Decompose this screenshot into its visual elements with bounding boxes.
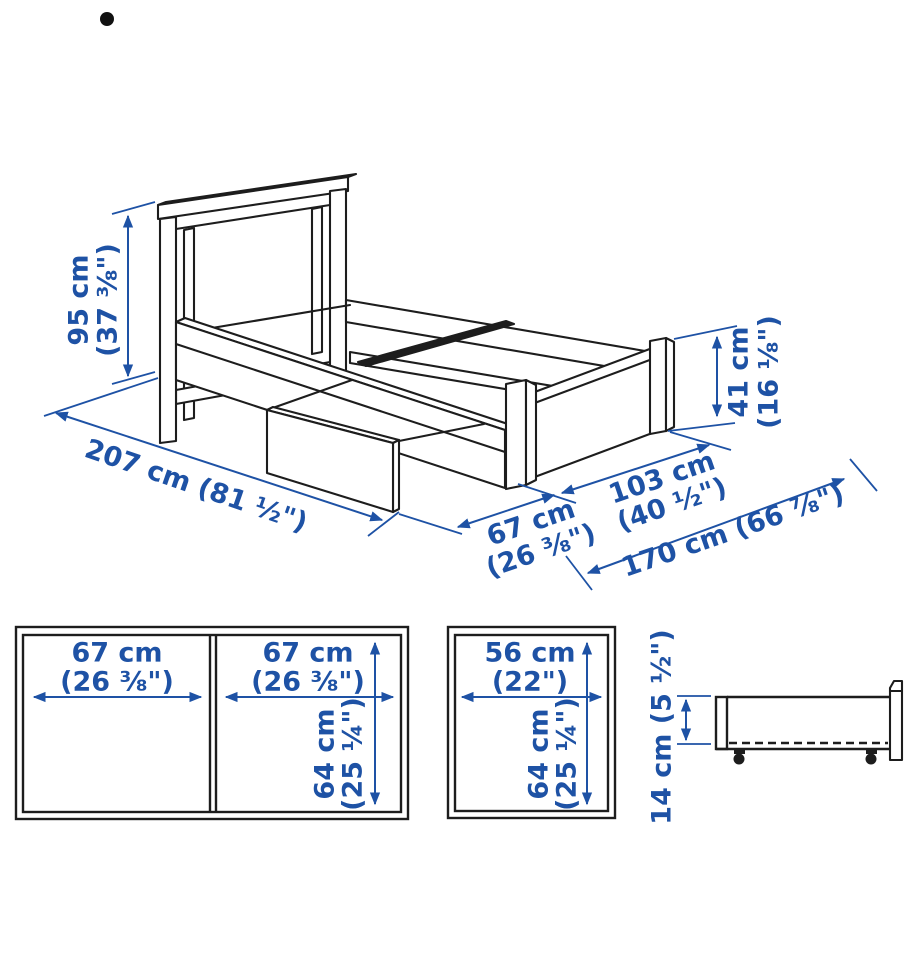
bed-isometric-drawing bbox=[158, 174, 674, 512]
headboard-muntin-right bbox=[312, 207, 322, 354]
side-view-back-panel bbox=[890, 681, 902, 760]
label-right-drawer-width-metric: 67 cm bbox=[262, 638, 353, 669]
caster-mount-left bbox=[734, 749, 745, 754]
page: { "colors": { "dimension_blue": "#1e52a5… bbox=[0, 0, 922, 960]
footboard-panel bbox=[532, 347, 655, 478]
label-double-drawer-depth-imperial: (25 ¼") bbox=[338, 697, 369, 811]
double-drawer-divider bbox=[210, 635, 216, 812]
label-single-drawer-width-imperial: (22") bbox=[492, 667, 568, 698]
ticks-14cm bbox=[677, 696, 711, 744]
caster-wheel-left bbox=[734, 754, 745, 765]
side-view-body-edges bbox=[716, 697, 902, 749]
drawer-side-view bbox=[677, 681, 902, 765]
label-left-drawer-width-metric: 67 cm bbox=[71, 638, 162, 669]
bed-dimension-diagram: 95 cm (37 ⅜") 41 cm (16 ⅛") 207 cm (81 ½… bbox=[0, 0, 922, 960]
label-drawer-height: 14 cm (5 ½") bbox=[647, 629, 678, 824]
label-right-drawer-width-imperial: (26 ⅜") bbox=[251, 667, 365, 698]
label-single-drawer-depth-metric: 64 cm bbox=[524, 708, 555, 799]
footboard-post-near-side bbox=[526, 380, 536, 485]
label-headboard-height-imperial: (37 ⅜") bbox=[93, 243, 124, 357]
label-single-drawer-depth-imperial: (25 ¼") bbox=[552, 697, 583, 811]
label-footboard-height-metric: 41 cm bbox=[724, 326, 755, 417]
label-headboard-height-metric: 95 cm bbox=[64, 254, 95, 345]
label-double-drawer-depth-metric: 64 cm bbox=[310, 708, 341, 799]
label-single-drawer-width-metric: 56 cm bbox=[484, 638, 575, 669]
footboard-post-far-side bbox=[666, 338, 674, 431]
label-left-drawer-width-imperial: (26 ⅜") bbox=[60, 667, 174, 698]
caster-wheel-right bbox=[866, 754, 877, 765]
headboard-post-left bbox=[160, 217, 176, 443]
headboard-post-right bbox=[330, 189, 346, 378]
label-footboard-height-imperial: (16 ⅛") bbox=[754, 315, 785, 429]
bullet-dot bbox=[100, 12, 114, 26]
footboard-post-near-front bbox=[506, 380, 526, 489]
caster-mount-right bbox=[866, 749, 877, 754]
footboard-post-far-front bbox=[650, 338, 666, 434]
side-view-front-edge bbox=[716, 697, 727, 749]
